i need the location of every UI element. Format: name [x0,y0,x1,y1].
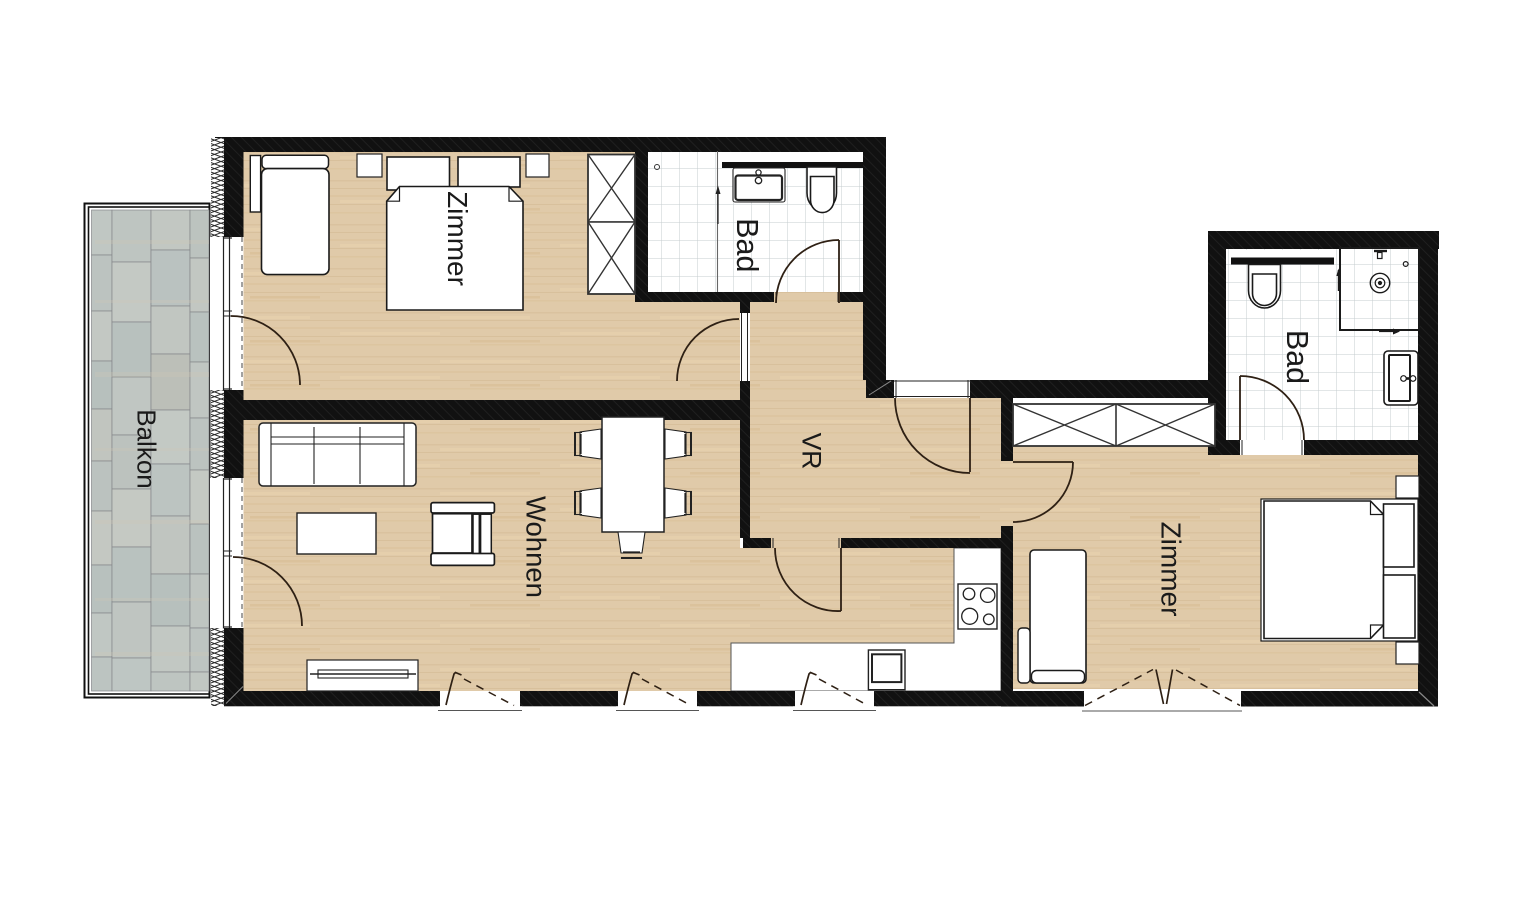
svg-text:Balkon: Balkon [132,409,162,489]
svg-text:Wohnen: Wohnen [521,496,552,598]
svg-text:Zimmer: Zimmer [442,191,473,286]
svg-text:Bad: Bad [1280,330,1314,384]
svg-text:VR: VR [797,433,827,470]
svg-text:Bad: Bad [730,218,764,272]
svg-text:Zimmer: Zimmer [1156,522,1187,617]
